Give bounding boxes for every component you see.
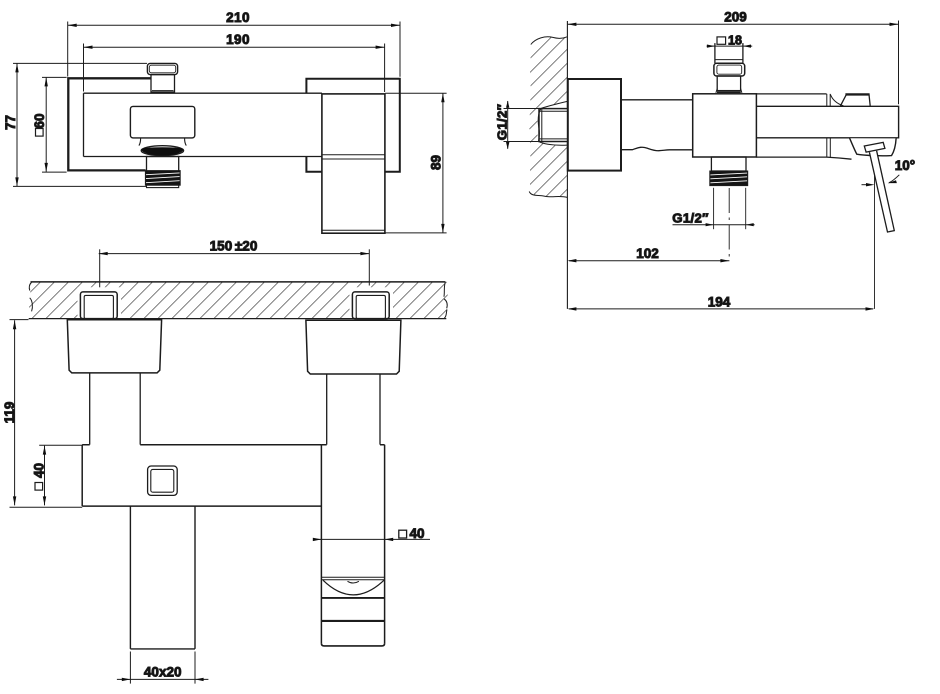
svg-text:18: 18 bbox=[728, 33, 742, 47]
svg-text:89: 89 bbox=[428, 155, 443, 170]
svg-text:194: 194 bbox=[708, 294, 731, 309]
svg-text:40: 40 bbox=[410, 526, 425, 541]
svg-text:60: 60 bbox=[32, 113, 47, 128]
svg-text:G1/2″: G1/2″ bbox=[672, 211, 709, 226]
svg-text:190: 190 bbox=[226, 32, 250, 47]
svg-text:G1/2″: G1/2″ bbox=[494, 103, 509, 140]
svg-text:40: 40 bbox=[31, 463, 46, 478]
svg-text:40x20: 40x20 bbox=[144, 665, 182, 680]
svg-text:102: 102 bbox=[636, 246, 659, 261]
svg-text:119: 119 bbox=[2, 402, 17, 424]
svg-text:150 ±20: 150 ±20 bbox=[210, 238, 258, 253]
svg-text:10°: 10° bbox=[895, 158, 915, 173]
svg-text:209: 209 bbox=[724, 10, 747, 25]
svg-text:210: 210 bbox=[226, 10, 250, 25]
svg-text:77: 77 bbox=[3, 115, 18, 130]
